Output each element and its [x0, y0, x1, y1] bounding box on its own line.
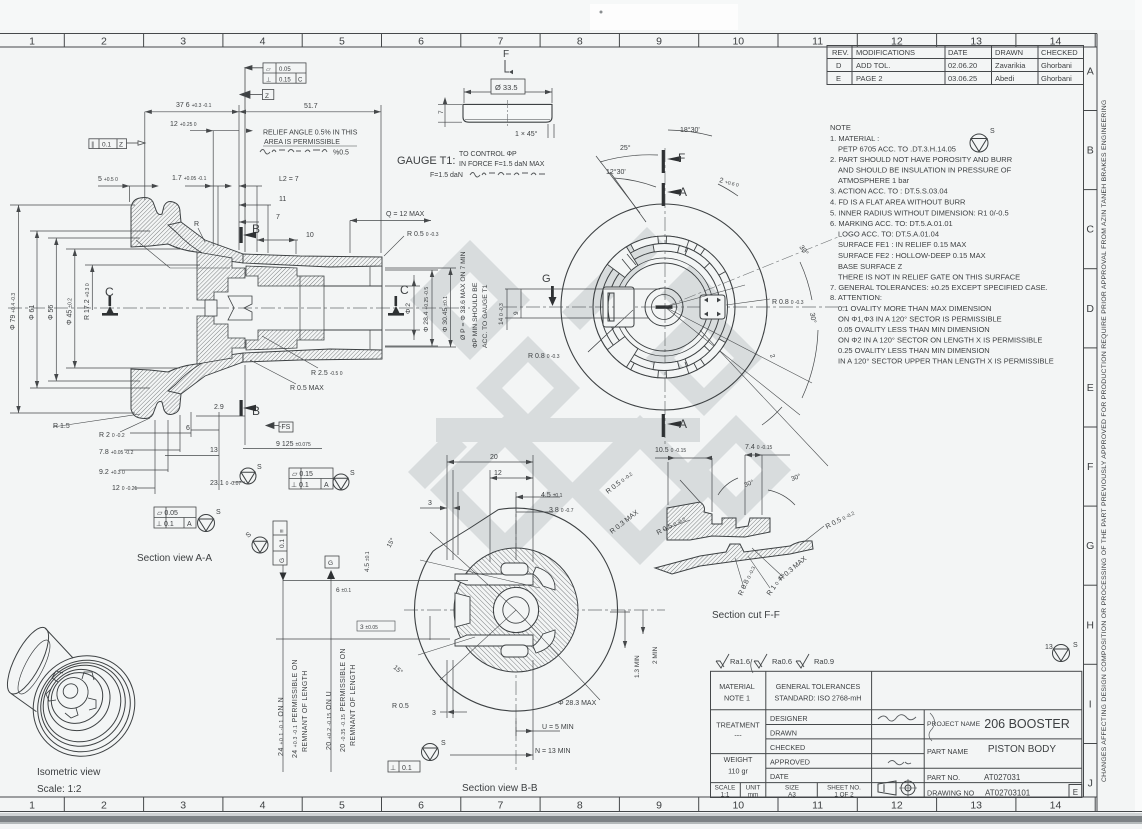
svg-text:1.3 MIN: 1.3 MIN: [634, 655, 641, 678]
svg-text:RELIEF ANGLE 0.5% IN THIS: RELIEF ANGLE 0.5% IN THIS: [263, 130, 358, 137]
svg-text:R 2.5 -0.5 0: R 2.5 -0.5 0: [311, 370, 343, 377]
svg-text:02.06.20: 02.06.20: [948, 61, 977, 70]
svg-text:24 +0.3 -0.1 PERMISSIBLE ON: 24 +0.3 -0.1 PERMISSIBLE ON: [292, 659, 299, 758]
svg-text:S: S: [350, 470, 355, 477]
svg-text:5: 5: [339, 36, 345, 48]
svg-text:PISTON BODY: PISTON BODY: [988, 744, 1056, 755]
svg-text:0.1: 0.1: [279, 539, 286, 548]
svg-text:AT027031: AT027031: [984, 773, 1021, 782]
svg-text:DRAWN: DRAWN: [770, 729, 797, 738]
svg-text:mm: mm: [748, 792, 759, 799]
svg-text:5: 5: [339, 800, 345, 812]
svg-text:20 +0.2 -0.15 ON U: 20 +0.2 -0.15 ON U: [326, 691, 333, 750]
svg-text:2.9: 2.9: [214, 404, 224, 411]
svg-text:SIZE: SIZE: [785, 785, 799, 792]
svg-text:I: I: [1089, 699, 1092, 711]
svg-text:7. GENERAL TOLERANCES: ±0.25 E: 7. GENERAL TOLERANCES: ±0.25 EXCEPT SPEC…: [830, 283, 1048, 292]
svg-text:4. FD IS A FLAT AREA WITHOUT B: 4. FD IS A FLAT AREA WITHOUT BURR: [830, 198, 966, 207]
svg-text:R 0.5 MAX: R 0.5 MAX: [290, 385, 324, 392]
svg-text:UNIT: UNIT: [746, 785, 761, 792]
svg-text:R: R: [194, 221, 199, 228]
svg-text:6: 6: [418, 36, 424, 48]
svg-text:23.1 0 -0.07: 23.1 0 -0.07: [210, 480, 241, 487]
svg-text:Section view B-B: Section view B-B: [462, 783, 538, 794]
svg-text:14 0 -0.3: 14 0 -0.3: [498, 303, 505, 325]
svg-text:4: 4: [260, 36, 266, 48]
svg-text:Φ 2: Φ 2: [405, 303, 412, 314]
svg-text:AND SHOULD BE INSULATION IN PR: AND SHOULD BE INSULATION IN PRESSURE OF: [838, 166, 1012, 175]
svg-text:SCALE: SCALE: [715, 785, 736, 792]
svg-text:10: 10: [306, 232, 314, 239]
svg-text:3: 3: [432, 710, 436, 717]
svg-text:25°: 25°: [620, 144, 631, 152]
svg-text:7: 7: [497, 800, 503, 812]
svg-text:BASE SURFACE Z: BASE SURFACE Z: [838, 262, 903, 271]
svg-text:Φ 30.45 ±0.1: Φ 30.45 ±0.1: [442, 296, 449, 332]
svg-text:Φ 28.4 +0.25 -0.5: Φ 28.4 +0.25 -0.5: [423, 287, 430, 332]
svg-text:0.1 OVALITY MORE THAN MAX DIME: 0.1 OVALITY MORE THAN MAX DIMENSION: [838, 304, 991, 313]
svg-text:3 ±0.05: 3 ±0.05: [360, 624, 378, 631]
svg-text:9: 9: [656, 36, 662, 48]
svg-text:Ra0.6: Ra0.6: [772, 657, 792, 666]
svg-text:APPROVED: APPROVED: [770, 758, 810, 767]
svg-text:6: 6: [186, 425, 190, 432]
svg-text:R 2 0 -0.2: R 2 0 -0.2: [99, 432, 125, 439]
svg-text:E: E: [1087, 382, 1094, 394]
svg-text:ON Φ2 IN A 120° SECTOR ON LENG: ON Φ2 IN A 120° SECTOR ON LENGTH X IS PE…: [838, 336, 1042, 345]
svg-text:7: 7: [497, 36, 503, 48]
svg-text:F: F: [678, 151, 685, 165]
svg-text:9: 9: [513, 311, 520, 315]
svg-text:Φ 79 +0.4 -0.3: Φ 79 +0.4 -0.3: [10, 293, 17, 330]
svg-text:1.7 +0.05 -0.1: 1.7 +0.05 -0.1: [172, 175, 207, 182]
svg-text:%0.5: %0.5: [333, 150, 349, 157]
svg-text:ATMOSPHERE 1 bar: ATMOSPHERE 1 bar: [838, 176, 910, 185]
svg-text:MATERIAL: MATERIAL: [719, 682, 754, 691]
svg-text:L2 = 7: L2 = 7: [279, 176, 299, 183]
svg-text:S: S: [1073, 642, 1078, 649]
svg-text:S: S: [990, 128, 995, 135]
svg-text:Φ 45 ±0.2: Φ 45 ±0.2: [67, 298, 74, 325]
svg-text:3.8 0 -0.7: 3.8 0 -0.7: [549, 507, 574, 514]
svg-text:REV.: REV.: [832, 48, 849, 57]
svg-text:12: 12: [494, 470, 502, 477]
svg-text:SURFACE FE2 : HOLLOW-DEEP 0.15: SURFACE FE2 : HOLLOW-DEEP 0.15 MAX: [838, 251, 986, 260]
svg-text:Ghorbani: Ghorbani: [1041, 74, 1072, 83]
svg-text:⊥ 0.1 A: ⊥ 0.1 A: [156, 521, 192, 528]
svg-text:11: 11: [279, 196, 286, 203]
svg-text:D: D: [836, 61, 842, 70]
svg-text:SURFACE FE1 : IN RELIEF 0.15 M: SURFACE FE1 : IN RELIEF 0.15 MAX: [838, 240, 966, 249]
svg-text:7: 7: [438, 110, 445, 114]
svg-text:Ra0.9: Ra0.9: [814, 657, 834, 666]
svg-text:2. PART SHOULD NOT HAVE POROSI: 2. PART SHOULD NOT HAVE POROSITY AND BUR…: [830, 155, 1013, 164]
svg-text:8. ATTENTION:: 8. ATTENTION:: [830, 293, 882, 302]
svg-text:Section view A-A: Section view A-A: [137, 553, 212, 564]
svg-text:10: 10: [732, 36, 744, 48]
svg-text:H: H: [1086, 619, 1094, 631]
svg-text:110 gr: 110 gr: [728, 767, 748, 776]
svg-text:Ra1.6: Ra1.6: [730, 657, 750, 666]
svg-text:GAUGE T1:: GAUGE T1:: [397, 155, 455, 167]
svg-text:13: 13: [970, 800, 982, 812]
svg-text:THERE IS NOT IN RELIEF GATE ON: THERE IS NOT IN RELIEF GATE ON THIS SURF…: [838, 273, 1020, 282]
svg-text:12°30': 12°30': [606, 168, 626, 176]
svg-text:D: D: [1086, 303, 1094, 315]
svg-text:DRAWING NO: DRAWING NO: [927, 789, 975, 798]
svg-text:CHANGES AFFECTING DESIGN COMPO: CHANGES AFFECTING DESIGN COMPOSITION OR …: [1101, 100, 1108, 783]
svg-text:R 0.5 0 -0.3: R 0.5 0 -0.3: [407, 231, 439, 238]
svg-text:6. MARKING ACC. TO: DT.5.A.01.: 6. MARKING ACC. TO: DT.5.A.01.01: [830, 219, 953, 228]
svg-text:E: E: [836, 74, 841, 83]
svg-text:PART NAME: PART NAME: [927, 747, 968, 756]
svg-text:A: A: [679, 417, 687, 431]
svg-text:-FS: -FS: [279, 424, 291, 431]
svg-text:3: 3: [428, 500, 432, 507]
svg-text:3: 3: [180, 800, 186, 812]
svg-text:AT02703101: AT02703101: [985, 789, 1031, 798]
svg-text:Abedi: Abedi: [995, 74, 1015, 83]
svg-text:13: 13: [1045, 644, 1053, 651]
svg-text:F=1.5 daN: F=1.5 daN: [430, 172, 463, 179]
svg-text:R 0.5: R 0.5: [392, 703, 409, 710]
svg-text:R 1.5: R 1.5: [53, 423, 70, 430]
svg-text:6 ±0.1: 6 ±0.1: [336, 587, 351, 594]
svg-text:12 0 -0.21: 12 0 -0.21: [112, 485, 138, 492]
svg-text:ACC. TO GAUGE T1: ACC. TO GAUGE T1: [482, 284, 489, 348]
svg-text:AREA IS PERMISSIBLE: AREA IS PERMISSIBLE: [264, 139, 340, 146]
svg-text:24 +0.1 -0.1 ON N: 24 +0.1 -0.1 ON N: [278, 697, 285, 756]
svg-text:S: S: [257, 464, 262, 471]
svg-text:R 17.2 +0.3 0: R 17.2 +0.3 0: [84, 283, 91, 320]
svg-text:R 0.8 0 -0.3: R 0.8 0 -0.3: [772, 299, 804, 306]
svg-text:REMNANT OF LENGTH: REMNANT OF LENGTH: [302, 670, 309, 752]
svg-text:PART NO.: PART NO.: [927, 773, 960, 782]
svg-text:9 125 ±0.075: 9 125 ±0.075: [276, 441, 311, 448]
svg-text:7: 7: [276, 214, 280, 221]
svg-text:LOGO ACC. TO: DT.5.A.01.04: LOGO ACC. TO: DT.5.A.01.04: [838, 230, 939, 239]
svg-text:PETP 6705 ACC. TO .DT.3.H.14.0: PETP 6705 ACC. TO .DT.3.H.14.05: [838, 145, 956, 154]
svg-text:Z: Z: [265, 93, 269, 100]
svg-text:9.2 +0.3 0: 9.2 +0.3 0: [99, 469, 125, 476]
svg-text:TO CONTROL ΦP: TO CONTROL ΦP: [459, 151, 517, 158]
svg-text:ADD TOL.: ADD TOL.: [856, 61, 890, 70]
svg-text:E: E: [1073, 788, 1078, 797]
svg-text:7.8 +0.05 -0.2: 7.8 +0.05 -0.2: [99, 449, 134, 456]
svg-text:STANDARD: ISO 2768-mH: STANDARD: ISO 2768-mH: [775, 694, 862, 703]
svg-text:NOTE: NOTE: [830, 123, 851, 132]
svg-text:1. MATERIAL :: 1. MATERIAL :: [830, 134, 879, 143]
svg-text:A: A: [679, 185, 687, 199]
svg-text:ΦP MIN SHOULD BE: ΦP MIN SHOULD BE: [472, 282, 479, 348]
svg-text:▱ 0.05: ▱ 0.05: [266, 67, 291, 73]
svg-text:11: 11: [812, 800, 823, 812]
svg-text:Ø P = Φ 33.6 MAX ON 7 MIN: Ø P = Φ 33.6 MAX ON 7 MIN: [460, 251, 467, 340]
svg-text:1 × 45°: 1 × 45°: [515, 130, 538, 138]
svg-text:206 BOOSTER: 206 BOOSTER: [984, 717, 1069, 731]
svg-text:N = 13 MIN: N = 13 MIN: [535, 748, 571, 755]
svg-text:2: 2: [101, 800, 107, 812]
svg-text:A3: A3: [788, 792, 796, 799]
svg-text:ON Φ1,Φ3 IN A 120° SECTOR IS: ON Φ1,Φ3 IN A 120° SECTOR IS PERMISSIBLE: [838, 315, 1002, 324]
svg-text:8: 8: [577, 36, 583, 48]
svg-text:0.25 OVALITY LESS THAN MIN DIM: 0.25 OVALITY LESS THAN MIN DIMENSION: [838, 346, 990, 355]
svg-text:1: 1: [29, 36, 35, 48]
svg-text:Isometric view: Isometric view: [37, 767, 101, 778]
svg-text:Section cut F-F: Section cut F-F: [712, 610, 780, 621]
svg-text:51.7: 51.7: [304, 103, 318, 110]
svg-text:WEIGHT: WEIGHT: [724, 755, 753, 764]
svg-text:2 MIN: 2 MIN: [652, 646, 659, 664]
svg-text:∥ 0.1 Z: ∥ 0.1 Z: [91, 141, 123, 149]
svg-text:37 6 +0.3 -0.1: 37 6 +0.3 -0.1: [176, 102, 212, 109]
svg-text:Φ 28.3 MAX: Φ 28.3 MAX: [558, 700, 597, 707]
svg-text:6: 6: [418, 800, 424, 812]
svg-text:1: 1: [29, 800, 35, 812]
svg-text:5. INNER RADIUS WITHOUT DIMENS: 5. INNER RADIUS WITHOUT DIMENSION: R1 0/…: [830, 209, 1009, 218]
svg-text:12 +0.25 0: 12 +0.25 0: [170, 121, 197, 128]
svg-text:C: C: [400, 283, 409, 297]
svg-text:5 +0.5 0: 5 +0.5 0: [98, 176, 118, 183]
svg-text:IN FORCE F=1.5 daN MAX: IN FORCE F=1.5 daN MAX: [459, 161, 545, 168]
svg-text:Q = 12 MAX: Q = 12 MAX: [386, 211, 425, 218]
svg-text:▱ 0.05: ▱ 0.05: [157, 510, 178, 517]
svg-text:CHECKED: CHECKED: [1041, 48, 1078, 57]
svg-text:▱ 0.15: ▱ 0.15: [292, 471, 313, 478]
svg-text:8: 8: [577, 800, 583, 812]
svg-text:Φ 61: Φ 61: [29, 305, 36, 320]
svg-text:G: G: [542, 273, 551, 285]
svg-text:---: ---: [734, 731, 742, 740]
svg-text:20: 20: [490, 454, 498, 461]
svg-text:PAGE 2: PAGE 2: [856, 74, 883, 83]
svg-text:G: G: [1086, 540, 1094, 552]
svg-text:12: 12: [891, 800, 903, 812]
svg-text:4.5 ±0.1: 4.5 ±0.1: [541, 492, 563, 499]
svg-text:20 -0.35 -0.15 PERMISSIBLE ON: 20 -0.35 -0.15 PERMISSIBLE ON: [340, 648, 347, 752]
svg-text:14: 14: [1050, 800, 1062, 812]
svg-text:11: 11: [812, 36, 823, 48]
svg-text:7.4 0 -0.15: 7.4 0 -0.15: [745, 444, 772, 451]
svg-text:3. ACTION ACC. TO : DT.5.S.03.: 3. ACTION ACC. TO : DT.5.S.03.04: [830, 187, 948, 196]
svg-text:DESIGNER: DESIGNER: [770, 714, 808, 723]
svg-text:⊥ 0.1 A: ⊥ 0.1 A: [291, 482, 329, 489]
svg-text:B: B: [1087, 145, 1094, 157]
svg-text:10: 10: [732, 800, 744, 812]
svg-text:Ø 33.5: Ø 33.5: [495, 83, 518, 92]
svg-text:1:1: 1:1: [721, 792, 730, 799]
svg-text:0.05 OVALITY LESS THAN MIN DIM: 0.05 OVALITY LESS THAN MIN DIMENSION: [838, 325, 990, 334]
svg-text:⊥ 0.15 C: ⊥ 0.15 C: [266, 77, 303, 84]
svg-text:NOTE 1: NOTE 1: [724, 694, 750, 703]
svg-text:A: A: [1087, 66, 1094, 78]
svg-text:3: 3: [180, 36, 186, 48]
svg-text:J: J: [1088, 778, 1093, 790]
svg-text:4: 4: [260, 800, 266, 812]
svg-text:DRAWN: DRAWN: [995, 48, 1023, 57]
svg-text:Ghorbani: Ghorbani: [1041, 61, 1072, 70]
svg-text:≡: ≡: [279, 529, 286, 533]
svg-text:9: 9: [656, 800, 662, 812]
svg-text:13: 13: [210, 447, 218, 454]
svg-text:R 0.8 0 -0.3: R 0.8 0 -0.3: [528, 353, 560, 360]
svg-text:2: 2: [101, 36, 107, 48]
svg-text:PROJECT NAME: PROJECT NAME: [927, 721, 981, 728]
svg-text:F: F: [503, 49, 509, 60]
svg-text:TREATMENT: TREATMENT: [716, 721, 760, 730]
svg-text:4.5 ±0.1: 4.5 ±0.1: [364, 551, 371, 572]
svg-text:Scale: 1:2: Scale: 1:2: [37, 784, 82, 795]
svg-text:DATE: DATE: [948, 48, 967, 57]
svg-text:S: S: [441, 740, 446, 747]
svg-text:MODIFICATIONS: MODIFICATIONS: [856, 48, 915, 57]
svg-text:GENERAL TOLERANCES: GENERAL TOLERANCES: [776, 682, 861, 691]
svg-text:03.06.25: 03.06.25: [948, 74, 977, 83]
svg-text:G: G: [328, 560, 333, 567]
svg-text:DATE: DATE: [770, 772, 789, 781]
svg-text:G: G: [279, 558, 286, 563]
svg-text:10.5 0 -0.15: 10.5 0 -0.15: [655, 447, 686, 454]
svg-text:S: S: [216, 509, 221, 516]
svg-text:U = 5 MIN: U = 5 MIN: [542, 724, 574, 731]
svg-text:REMNANT OF LENGTH: REMNANT OF LENGTH: [350, 664, 357, 746]
svg-text:C: C: [1086, 224, 1094, 236]
svg-text:1 OF 2: 1 OF 2: [834, 792, 854, 799]
svg-text:CHECKED: CHECKED: [770, 743, 805, 752]
svg-text:18°30': 18°30': [680, 126, 700, 134]
svg-text:Φ 56: Φ 56: [48, 305, 55, 320]
svg-text:SHEET NO.: SHEET NO.: [827, 785, 861, 792]
svg-text:F: F: [1087, 461, 1093, 473]
svg-text:Zavarikia: Zavarikia: [995, 61, 1026, 70]
svg-text:IN A 120° SECTOR UPPER THAN LE: IN A 120° SECTOR UPPER THAN LENGTH X IS …: [838, 357, 1054, 366]
